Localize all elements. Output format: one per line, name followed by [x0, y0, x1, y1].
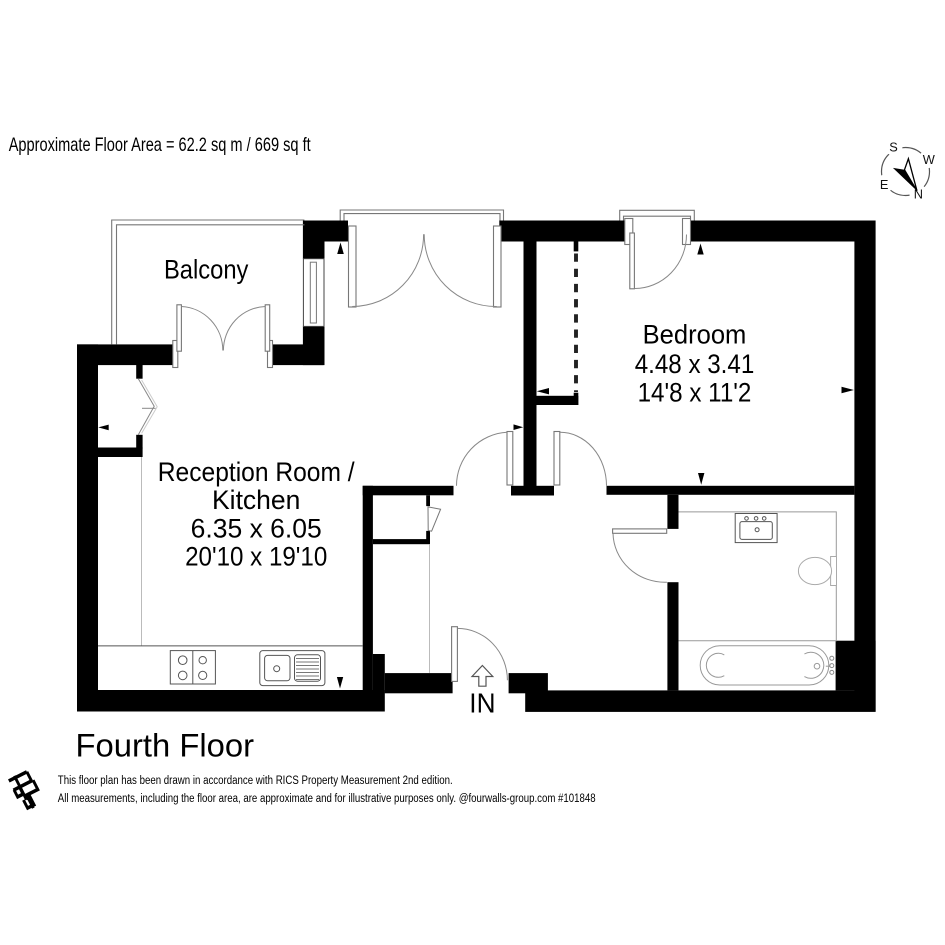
svg-text:IN: IN	[469, 687, 495, 718]
svg-text:S: S	[889, 139, 898, 154]
svg-text:Reception Room /: Reception Room /	[158, 457, 355, 487]
svg-text:4.48 x 3.41: 4.48 x 3.41	[635, 349, 755, 379]
svg-text:Kitchen: Kitchen	[212, 485, 300, 515]
svg-text:Bedroom: Bedroom	[643, 320, 747, 350]
svg-text:This floor plan has been drawn: This floor plan has been drawn in accord…	[58, 775, 453, 787]
svg-text:Fourth Floor: Fourth Floor	[76, 727, 255, 763]
svg-text:All measurements, including th: All measurements, including the floor ar…	[58, 793, 596, 805]
svg-text:W: W	[923, 152, 936, 167]
svg-text:Approximate Floor Area = 62.2: Approximate Floor Area = 62.2 sq m / 669…	[9, 134, 311, 156]
svg-text:6.35 x 6.05: 6.35 x 6.05	[191, 514, 322, 544]
svg-text:20'10 x 19'10: 20'10 x 19'10	[185, 542, 327, 572]
svg-text:14'8 x 11'2: 14'8 x 11'2	[638, 378, 752, 408]
svg-text:Balcony: Balcony	[164, 255, 249, 285]
svg-text:E: E	[880, 177, 889, 192]
